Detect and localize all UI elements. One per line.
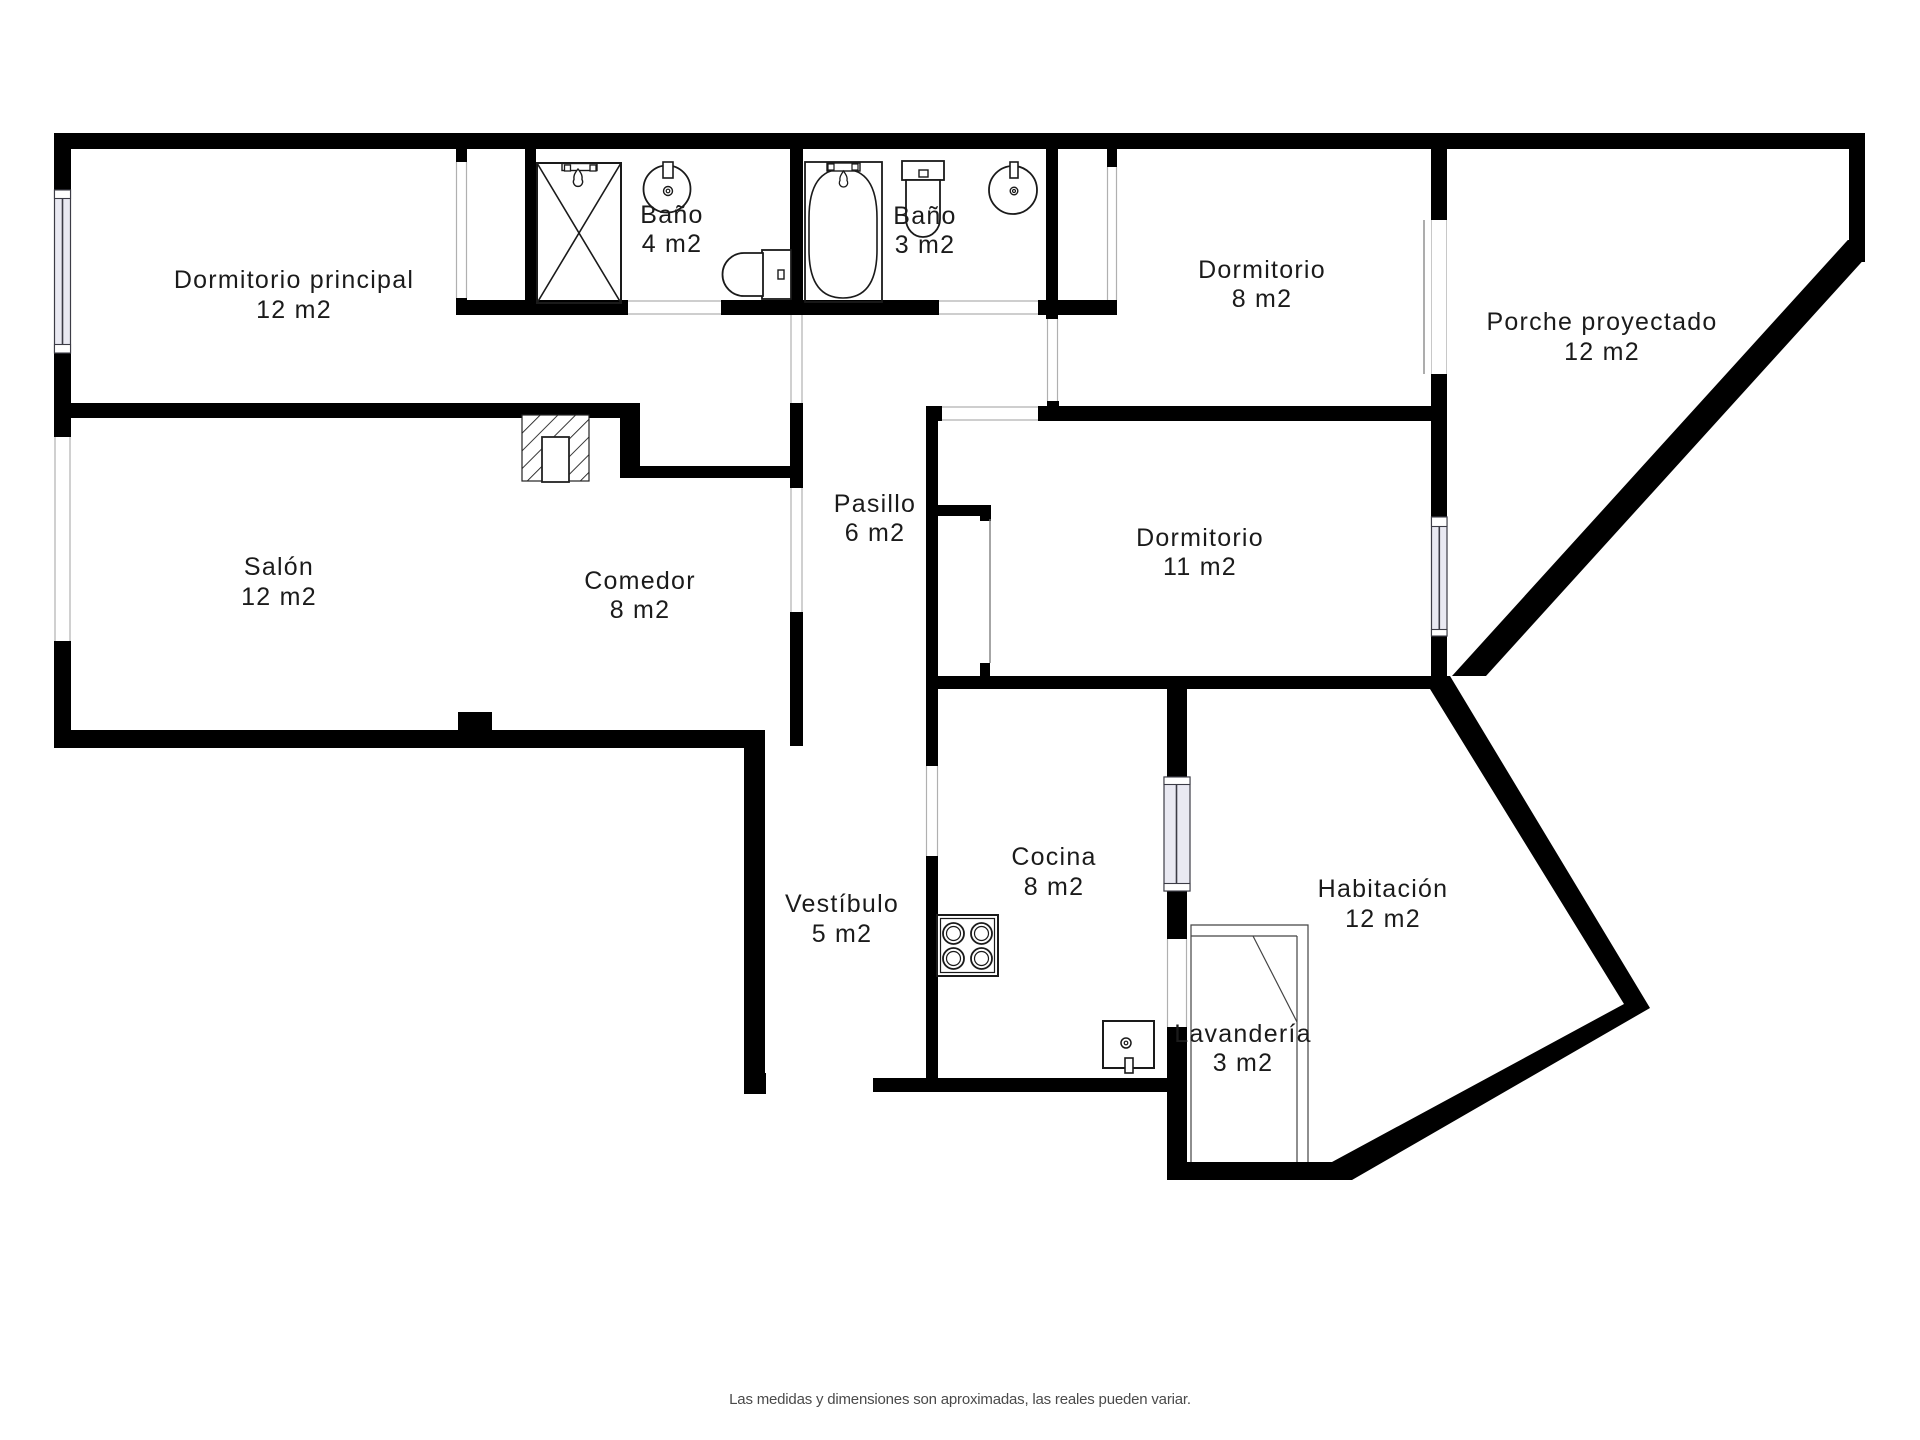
svg-text:5 m2: 5 m2	[812, 920, 873, 948]
svg-text:12 m2: 12 m2	[256, 296, 332, 324]
svg-text:12 m2: 12 m2	[241, 583, 317, 611]
svg-text:8 m2: 8 m2	[1232, 285, 1293, 313]
svg-text:Dormitorio principal: Dormitorio principal	[174, 266, 414, 294]
svg-text:Habitación: Habitación	[1318, 875, 1449, 903]
svg-text:11 m2: 11 m2	[1163, 553, 1237, 581]
svg-text:Cocina: Cocina	[1011, 843, 1096, 871]
svg-text:Las medidas y dimensiones son: Las medidas y dimensiones son aproximada…	[729, 1391, 1191, 1408]
svg-text:6 m2: 6 m2	[845, 519, 906, 547]
svg-text:Comedor: Comedor	[584, 567, 696, 595]
svg-text:3 m2: 3 m2	[1213, 1049, 1274, 1077]
svg-text:Baño: Baño	[893, 202, 956, 230]
svg-text:Lavandería: Lavandería	[1174, 1020, 1312, 1048]
svg-text:Dormitorio: Dormitorio	[1198, 256, 1326, 284]
svg-text:4 m2: 4 m2	[642, 230, 703, 258]
svg-text:Vestíbulo: Vestíbulo	[785, 890, 899, 918]
svg-text:Salón: Salón	[244, 553, 314, 581]
svg-text:Pasillo: Pasillo	[834, 490, 916, 518]
svg-text:8 m2: 8 m2	[610, 596, 671, 624]
svg-text:8 m2: 8 m2	[1024, 873, 1085, 901]
svg-text:12 m2: 12 m2	[1564, 338, 1640, 366]
svg-text:Baño: Baño	[640, 201, 703, 229]
svg-text:Porche proyectado: Porche proyectado	[1486, 308, 1717, 336]
svg-text:12 m2: 12 m2	[1345, 905, 1421, 933]
svg-text:Dormitorio: Dormitorio	[1136, 524, 1264, 552]
svg-text:3 m2: 3 m2	[895, 231, 956, 259]
